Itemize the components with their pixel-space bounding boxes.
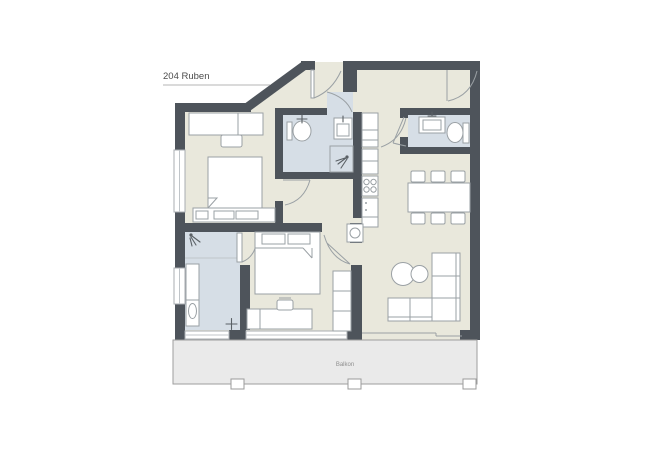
wall-bedroom1-right-upper — [275, 112, 283, 172]
coffee-table-small — [411, 266, 428, 283]
wall-right — [470, 61, 480, 340]
vanity-unit — [186, 264, 199, 326]
shower-room-door-leaf — [237, 233, 242, 262]
toilet-tank-mid — [287, 122, 292, 140]
entry-door-leaf — [311, 70, 314, 98]
desk-chair-bedroom1 — [221, 135, 242, 147]
balcony-label: Balkon — [336, 362, 354, 368]
dining-chair-bottom-3 — [451, 213, 465, 224]
base-unit — [362, 217, 378, 227]
toilet-tank-tr — [463, 123, 469, 143]
wardrobe-bedroom2 — [333, 271, 351, 331]
balcony-deck — [173, 340, 477, 384]
unit-title: 204 Ruben — [163, 71, 209, 82]
dining-chair-top-1 — [411, 171, 425, 182]
dining-furniture — [408, 171, 470, 224]
wall-top-left — [175, 103, 251, 112]
oven-knob-2 — [365, 209, 367, 211]
wall-bathroom-middle-top — [275, 108, 327, 115]
wall-kitchen — [353, 112, 362, 218]
wall-bathroom-middle-bottom — [275, 172, 353, 179]
dining-chair-top-2 — [431, 171, 445, 182]
wall-living-divider — [351, 265, 362, 330]
wall-bathroom-tr-left-a — [400, 108, 408, 118]
dining-chair-top-3 — [451, 171, 465, 182]
desk-chair-bedroom2 — [277, 300, 293, 310]
sideboard-drawer-1 — [196, 211, 208, 219]
kitchen-sink-unit — [347, 224, 363, 242]
balcony-post-3 — [463, 379, 476, 389]
wall-bathroom-tr-bottom — [400, 147, 470, 154]
double-bed-bedroom1 — [208, 157, 262, 208]
sideboard-drawer-2 — [214, 211, 234, 219]
balcony-post-1 — [231, 379, 244, 389]
bed2-pillow-right — [288, 234, 310, 244]
oven-knob-1 — [365, 202, 367, 204]
balcony: Balkon — [173, 340, 477, 389]
wall-bottom-pier-1 — [229, 330, 246, 340]
desk-bedroom1 — [189, 113, 263, 135]
floor-plan-page: Balkon 204 Ruben — [0, 0, 650, 450]
toilet-bowl-mid — [293, 121, 311, 141]
wall-bathroom-tr-top — [400, 108, 470, 115]
balcony-post-2 — [348, 379, 361, 389]
floor-plan: Balkon 204 Ruben — [0, 0, 650, 450]
sideboard-drawer-3 — [236, 211, 258, 219]
oven-unit — [362, 198, 378, 217]
dining-chair-bottom-2 — [431, 213, 445, 224]
cooktop-unit — [362, 176, 378, 196]
wall-bedrooms-divider — [175, 223, 322, 232]
toilet-bowl-tr — [447, 123, 463, 143]
wall-left-3 — [175, 304, 185, 340]
wall-left-2 — [175, 212, 185, 268]
wall-bottom-pier-3 — [460, 330, 480, 340]
bed2-pillow-left — [262, 234, 285, 244]
dining-table — [408, 183, 470, 212]
dining-chair-bottom-1 — [411, 213, 425, 224]
plan-header: 204 Ruben — [163, 71, 270, 85]
bathroom-middle-door-nook — [327, 92, 353, 115]
wall-top-right — [343, 61, 480, 70]
desk-bedroom2 — [247, 309, 312, 329]
